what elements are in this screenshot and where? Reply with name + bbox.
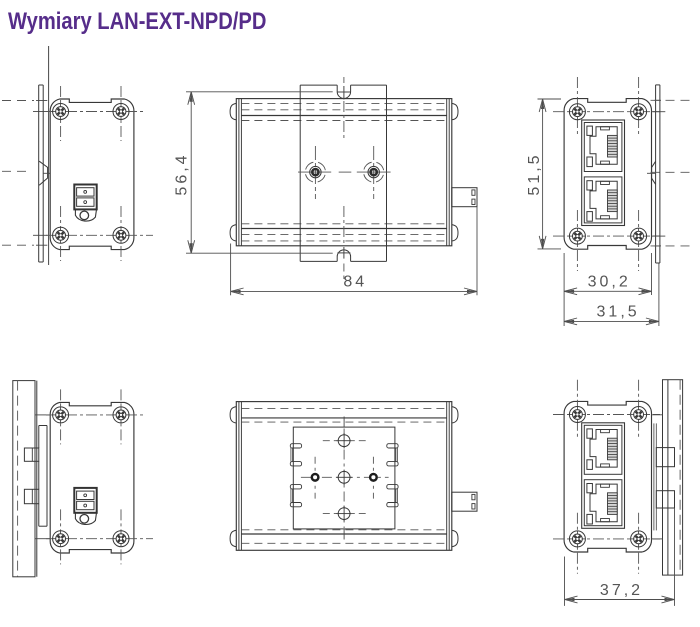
svg-text:31,5: 31,5 <box>597 304 640 321</box>
svg-text:37,2: 37,2 <box>600 582 643 599</box>
svg-text:51,5: 51,5 <box>526 152 543 195</box>
svg-text:56,4: 56,4 <box>174 152 191 195</box>
svg-text:30,2: 30,2 <box>588 274 631 291</box>
svg-text:84: 84 <box>343 274 367 291</box>
